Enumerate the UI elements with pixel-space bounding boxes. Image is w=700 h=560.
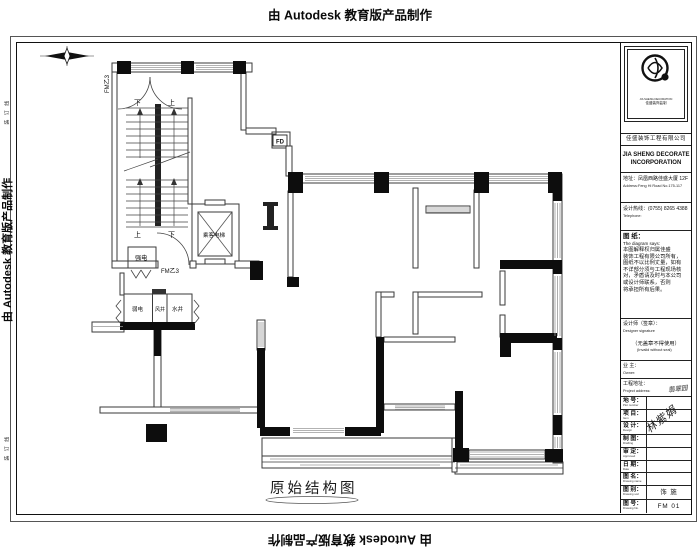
address-section: 地址：凤凰西路佳盛大厦 12F Address:Feng Hi Road No.… xyxy=(621,173,691,203)
row-value: FM 01 xyxy=(647,500,691,513)
note-line: 或设计师联系，否则 xyxy=(623,280,689,287)
row-label-en: Item xyxy=(623,417,643,420)
weak-electric-label: 弱电 xyxy=(132,305,144,313)
phone-cn: 设计热线：(0755) 8265 4388 xyxy=(623,206,689,213)
phone-en: Telephone: xyxy=(623,213,686,219)
floor-drain-tag: FD xyxy=(273,135,287,146)
address-en: Address:Feng Hi Road No.175-117 xyxy=(623,183,686,189)
windows xyxy=(93,66,560,466)
row-value: 饰 施 xyxy=(647,486,691,499)
table-row: 图 别：Drawing sort 饰 施 xyxy=(621,486,691,500)
water-shaft-label: 水井 xyxy=(172,305,184,313)
site-value-handwritten: 翡翠园 xyxy=(667,382,687,394)
row-label-en: Drawing No. xyxy=(623,507,643,510)
row-value xyxy=(647,473,691,485)
logo-caption-cn: 佳盛装饰监制 xyxy=(628,101,684,106)
row-label-en: Design xyxy=(623,430,643,433)
designer-en: Designer signature xyxy=(623,328,686,334)
table-row: 审 定：Approved xyxy=(621,448,691,461)
elevator-label: 乘客电梯 xyxy=(203,231,226,239)
company-name-en-line1: JIA SHENG DECORATE xyxy=(621,151,691,159)
owner-en: Owner: xyxy=(623,370,686,376)
row-label-en: Approved xyxy=(623,455,643,458)
designer-section: 设计师（签章）： Designer signature （无盖章不得使用） (I… xyxy=(621,319,691,361)
table-row: 制 图：Drafting xyxy=(621,435,691,448)
north-arrow-icon xyxy=(40,46,94,66)
row-label-en: Drafting xyxy=(623,442,643,445)
stair-up-label-top: 上 xyxy=(168,98,175,107)
columns-and-shear-walls xyxy=(117,61,563,462)
row-label-en: Date xyxy=(623,468,643,471)
company-name-cn: 佳盛装饰工程有限公司 xyxy=(621,134,691,146)
row-label-en: Drawing name xyxy=(623,480,643,483)
row-label-en: Plot number xyxy=(623,404,643,407)
seal-note-en: (Invalid without seal) xyxy=(623,347,686,353)
plan-title-group: 原始结构图 xyxy=(266,480,358,504)
table-row: 日 期：Date xyxy=(621,461,691,474)
row-value xyxy=(647,461,691,473)
seal-note: （无盖章不得使用） xyxy=(623,339,689,347)
company-name-en-line2: INCORPORATION xyxy=(621,159,691,167)
strong-electric-label: 强电 xyxy=(135,254,147,262)
air-shaft-label: 风井 xyxy=(155,306,165,313)
staircase xyxy=(124,104,190,227)
row-value xyxy=(647,448,691,460)
phone-section: 设计热线：(0755) 8265 4388 Telephone: xyxy=(621,203,691,231)
stair-down-label-top: 下 xyxy=(134,99,141,107)
stair-down-label-bottom: 下 xyxy=(168,231,175,239)
floor-plan-canvas: FD FM乙3 下 上 上 下 FM乙3 强电 乘客电梯 弱电 风井 水井 原始… xyxy=(0,0,700,560)
stair-up-label-bottom: 上 xyxy=(134,230,141,239)
note-line: 对，矛盾请及时与本公司 xyxy=(623,273,689,280)
note-title: 图 纸： xyxy=(623,233,689,241)
table-row: 图 号：Drawing No. FM 01 xyxy=(621,500,691,513)
address-cn: 地址：凤凰西路佳盛大厦 12F xyxy=(623,176,689,183)
company-name-en: JIA SHENG DECORATE INCORPORATION xyxy=(621,146,691,173)
note-line: 本图解释权归属佳盛 xyxy=(623,247,689,254)
row-value xyxy=(647,435,691,447)
company-logo-section: JIA SHENG DECORATION 佳盛装饰监制 xyxy=(621,43,691,134)
table-row: 地 号：Plot number xyxy=(621,397,691,410)
note-line: 将承担所有后果。 xyxy=(623,287,689,294)
table-row: 图 名：Drawing name xyxy=(621,473,691,486)
fire-door-label-top: FM乙3 xyxy=(104,74,111,93)
drawing-note-section: 图 纸： The diagram says: 本图解释权归属佳盛 装饰工程有限公… xyxy=(621,231,691,319)
title-block: JIA SHENG DECORATION 佳盛装饰监制 佳盛装饰工程有限公司 J… xyxy=(620,43,691,513)
fire-door-label-bottom: FM乙3 xyxy=(161,268,180,275)
row-label-en: Drawing sort xyxy=(623,493,643,496)
site-section: 工程地址： Project address: 翡翠园 xyxy=(621,379,691,397)
designer-label: 设计师（签章）： xyxy=(623,321,689,328)
logo-caption-en: JIA SHENG DECORATION xyxy=(631,97,681,101)
owner-section: 业 主： Owner: xyxy=(621,361,691,379)
plan-title: 原始结构图 xyxy=(270,480,358,497)
floor-drain-label: FD xyxy=(276,140,285,146)
company-logo-icon xyxy=(634,52,678,92)
owner-label: 业 主： xyxy=(623,363,689,370)
drawing-sheet: 由 Autodesk 教育版产品制作 由 Autodesk 教育版产品制作 由 … xyxy=(0,0,700,560)
note-line: 图纸不以比例丈量，如有 xyxy=(623,260,689,267)
